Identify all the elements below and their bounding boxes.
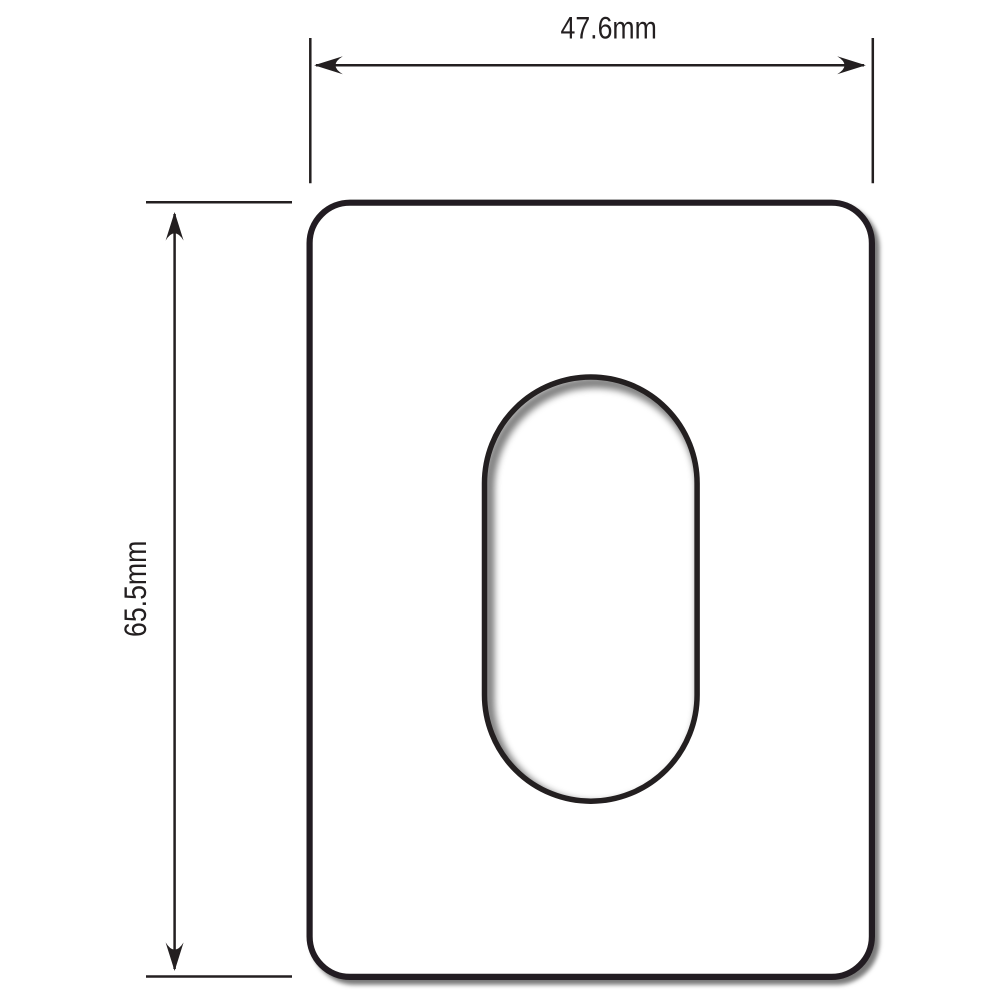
- svg-text:47.6mm: 47.6mm: [561, 11, 657, 45]
- svg-text:65.5mm: 65.5mm: [119, 541, 153, 637]
